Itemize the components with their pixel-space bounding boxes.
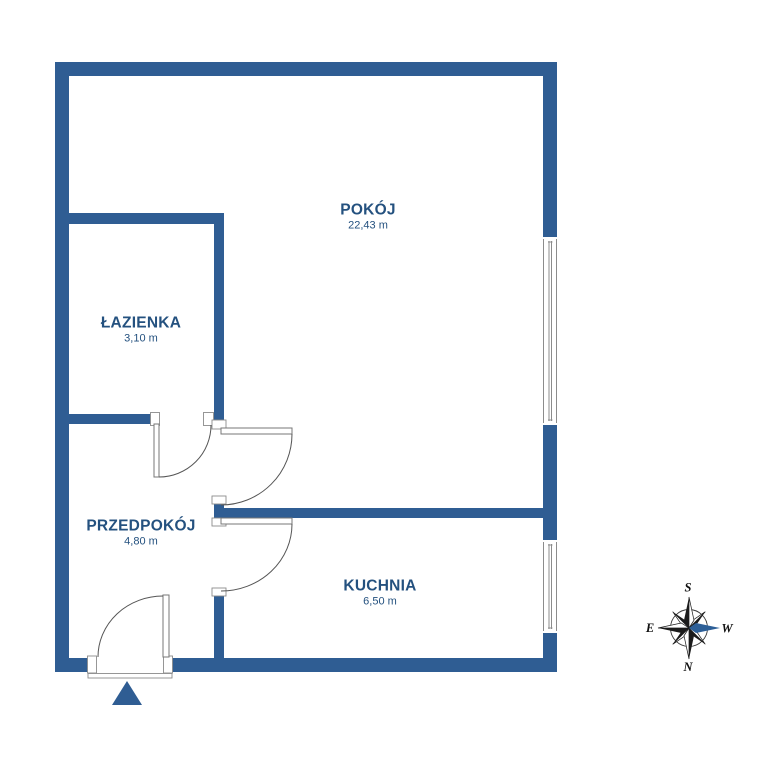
wall-hall-upper — [214, 213, 224, 426]
wall-right-middle — [543, 425, 557, 540]
room-label-przedpokoj: PRZEDPOKÓJ 4,80 m — [86, 518, 195, 549]
wall-bottom-main — [170, 658, 557, 672]
compass-label-bottom: N — [682, 660, 693, 674]
door-entrance — [88, 595, 173, 705]
door-jamb — [212, 588, 226, 596]
room-name: ŁAZIENKA — [101, 315, 181, 332]
compass-label-top: S — [685, 581, 692, 595]
room-name: POKÓJ — [340, 202, 396, 219]
door-leaf — [163, 595, 169, 657]
door-swing-arc — [221, 434, 292, 505]
walls-group — [55, 62, 557, 672]
room-area: 3,10 m — [101, 333, 181, 345]
compass-label-left: E — [645, 621, 654, 635]
wall-left — [55, 62, 69, 672]
room-label-pokoj: POKÓJ 22,43 m — [340, 202, 396, 233]
wall-right-upper — [543, 62, 557, 237]
door-jamb — [164, 656, 173, 673]
door-jamb — [88, 656, 97, 673]
room-area: 4,80 m — [86, 536, 195, 548]
room-label-lazienka: ŁAZIENKA 3,10 m — [101, 315, 181, 346]
door-leaf — [221, 518, 292, 524]
window-room — [544, 239, 557, 423]
window-kitchen — [544, 542, 557, 631]
room-name: PRZEDPOKÓJ — [86, 518, 195, 535]
wall-room-kitchen — [214, 508, 543, 518]
room-label-kuchnia: KUCHNIA 6,50 m — [343, 578, 416, 609]
compass-label-right: W — [721, 622, 733, 636]
door-leaf — [154, 424, 159, 477]
door-swing-arc — [221, 524, 292, 591]
entrance-threshold — [88, 674, 172, 679]
room-area: 22,43 m — [340, 220, 396, 232]
door-leaf — [221, 428, 292, 434]
door-room — [212, 420, 292, 505]
door-kitchen — [212, 518, 292, 596]
room-name: KUCHNIA — [343, 578, 416, 595]
door-swing-arc — [159, 425, 211, 477]
wall-bottom-left — [55, 658, 90, 672]
entrance-arrow-icon — [112, 681, 142, 705]
door-bathroom — [151, 413, 214, 478]
wall-right-lower — [543, 633, 557, 672]
door-jamb — [212, 496, 226, 504]
floor-plan-canvas: S N E W POKÓJ 22,43 m ŁAZIENKA 3,10 m PR… — [0, 0, 780, 768]
room-area: 6,50 m — [343, 596, 416, 608]
wall-top — [55, 62, 557, 76]
wall-bathroom-bottom — [69, 414, 152, 424]
wall-hall-lower — [214, 596, 224, 658]
door-swing-arc — [98, 596, 163, 657]
compass-rose-icon: S N E W — [645, 581, 734, 675]
floor-plan-drawing: S N E W — [0, 0, 780, 768]
wall-bathroom-top — [69, 213, 224, 224]
